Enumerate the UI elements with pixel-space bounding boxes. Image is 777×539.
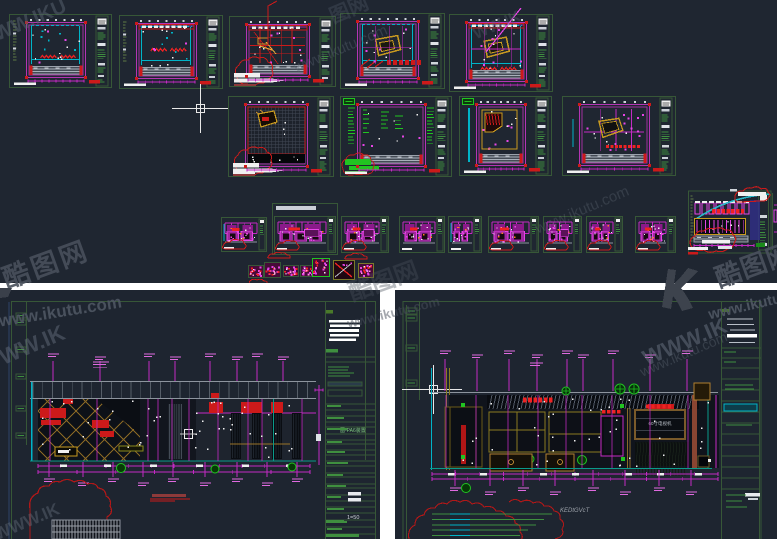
svg-text:60寸电视机: 60寸电视机	[648, 420, 672, 427]
svg-text:KEDtGVcT: KEDtGVcT	[560, 508, 591, 514]
svg-text:1=50: 1=50	[347, 515, 359, 521]
